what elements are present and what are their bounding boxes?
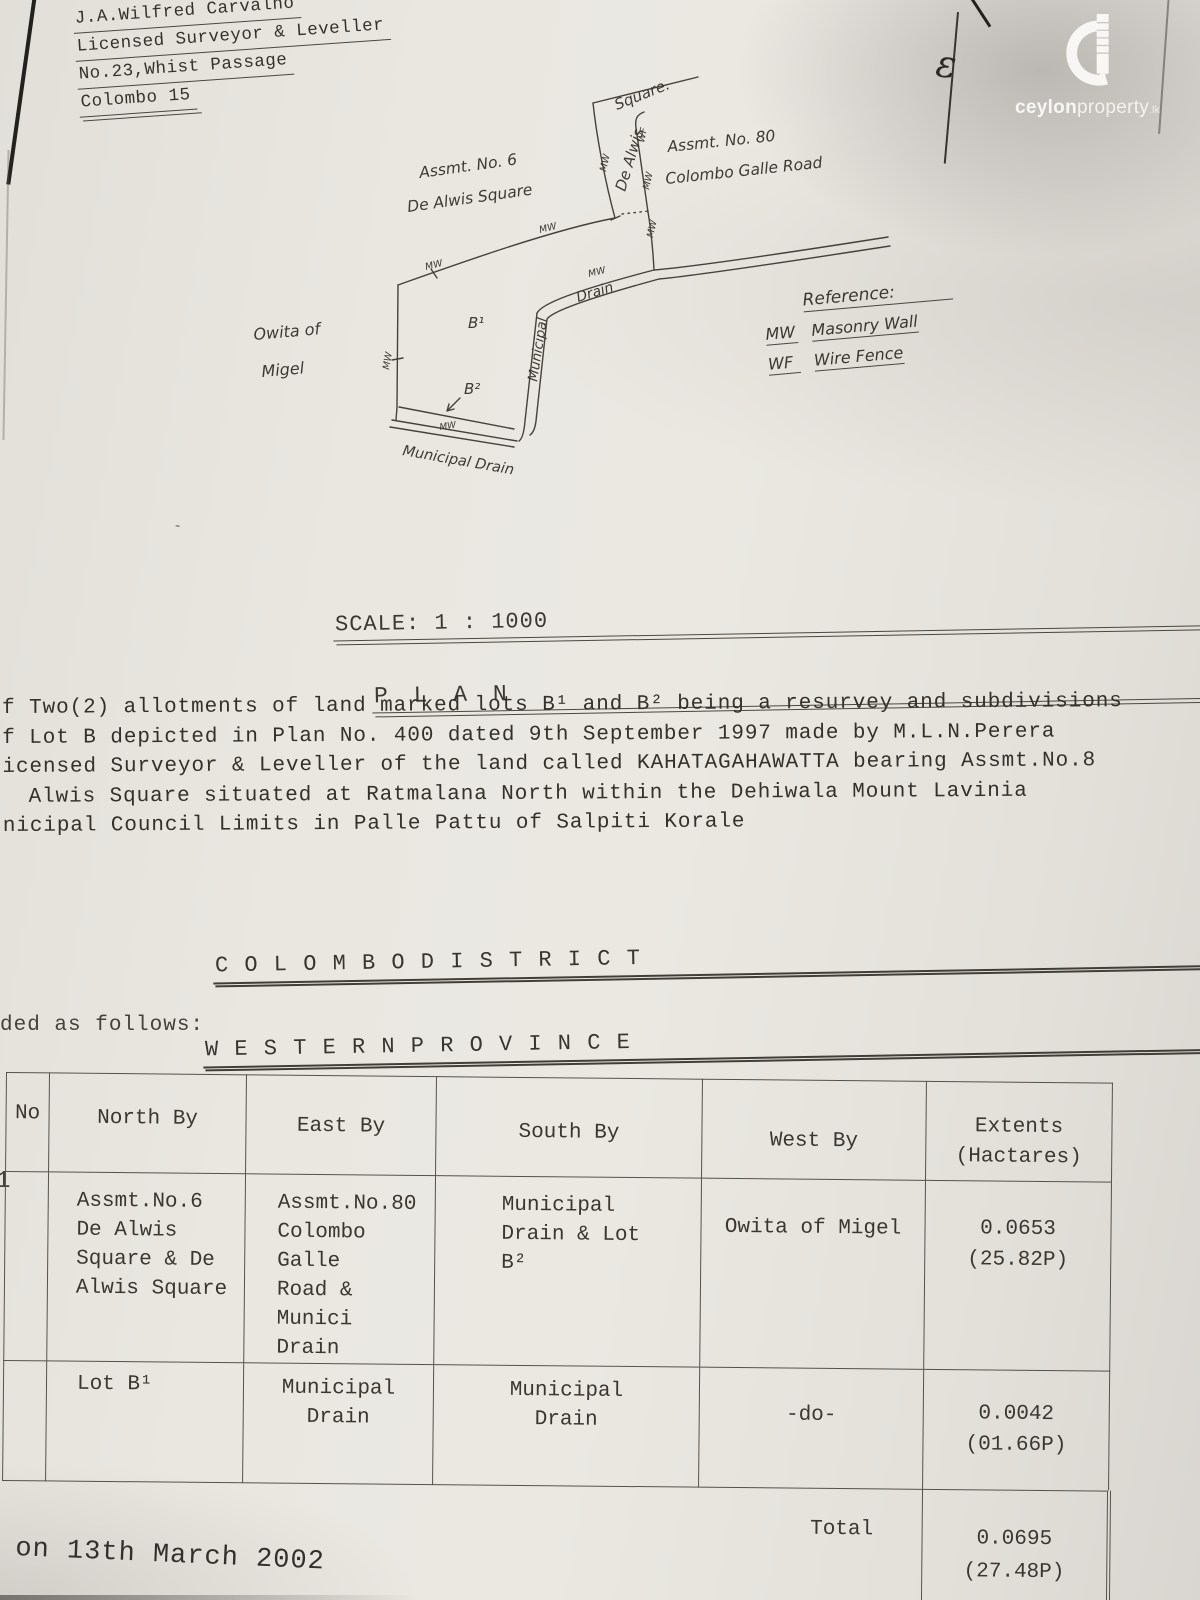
lot-b2-fence-line bbox=[399, 407, 514, 429]
mw-label: MW bbox=[424, 258, 444, 273]
assmt80-label-1: Assmt. No. 80 bbox=[666, 127, 777, 156]
header-no: No bbox=[6, 1073, 50, 1172]
road-end-dotted-line bbox=[622, 211, 649, 214]
cell-east-by: Assmt.No.80Colombo GalleRoad & MuniciDra… bbox=[244, 1174, 436, 1365]
cell-no bbox=[4, 1172, 49, 1361]
ceylonproperty-wordmark: ceylonproperty.lk bbox=[1000, 97, 1175, 119]
municipal-label: Municipal bbox=[525, 316, 551, 382]
total-label: Total bbox=[697, 1487, 922, 1600]
cell-no bbox=[3, 1360, 47, 1480]
header-south-by: South By bbox=[436, 1077, 703, 1179]
lot-b1-label: B¹ bbox=[468, 314, 484, 332]
mw-label: MW bbox=[645, 219, 660, 239]
cell-west-by: Owita of Migel bbox=[700, 1178, 926, 1369]
plan-description: f Two(2) allotments of land marked lots … bbox=[2, 687, 1197, 842]
owita-label-1: Owita of bbox=[253, 319, 323, 344]
logo-text-bold: ceylon bbox=[1015, 97, 1077, 118]
mw-label: MW bbox=[381, 351, 395, 371]
west-boundary-wall bbox=[396, 285, 398, 420]
header-extents-line1: Extents bbox=[927, 1112, 1110, 1144]
description-line: nicipal Council Limits in Palle Pattu of… bbox=[3, 805, 1197, 842]
total-extent: 0.0695(27.48P) bbox=[921, 1489, 1108, 1600]
wf-label: WF bbox=[636, 126, 650, 143]
north-boundary-wall bbox=[398, 218, 615, 285]
table-row: Assmt.No.6De AlwisSquare & DeAlwis Squar… bbox=[4, 1172, 1112, 1372]
scanned-survey-plan-page: ` J.A.Wilfred Carvalho Licensed Surveyor… bbox=[0, 0, 1200, 1600]
table-header-row: No North By East By South By West By Ext… bbox=[6, 1073, 1113, 1183]
logo-text-tld: .lk bbox=[1149, 105, 1160, 116]
plan-sketch: Square. De Alwis WF MW MW MW Assmt. No. … bbox=[240, 70, 940, 480]
ceylonproperty-logo-icon bbox=[1049, 14, 1127, 90]
mw-label: MW bbox=[538, 221, 558, 236]
square-label: Square. bbox=[612, 75, 672, 113]
bounded-as-follows-text: ded as follows: bbox=[0, 1014, 204, 1037]
lot-b2-label: B² bbox=[464, 380, 480, 398]
boundary-line-mark bbox=[944, 12, 959, 164]
header-east-by: East By bbox=[246, 1075, 437, 1176]
scale-text: SCALE: 1 : 1000 bbox=[333, 592, 1200, 642]
wf-abbr: WF bbox=[767, 352, 801, 376]
cell-extent: 0.0653(25.82P) bbox=[924, 1180, 1112, 1371]
cell-north-by: Assmt.No.6De AlwisSquare & DeAlwis Squar… bbox=[47, 1172, 246, 1363]
cell-extent: 0.0042(01.66P) bbox=[923, 1369, 1110, 1491]
mw-label: MW bbox=[587, 265, 607, 280]
logo-text-light: property bbox=[1077, 97, 1149, 118]
header-extents: Extents (Hactares) bbox=[926, 1081, 1113, 1182]
assmt6-label-1: Assmt. No. 6 bbox=[417, 150, 518, 182]
mw-abbr: MW bbox=[765, 322, 799, 346]
header-extents-line2: (Hactares) bbox=[927, 1142, 1110, 1174]
page-edge-line bbox=[6, 0, 36, 185]
header-west-by: West By bbox=[702, 1079, 927, 1180]
cell-south-by: MunicipalDrain bbox=[433, 1365, 700, 1488]
province-heading: W E S T E R N P R O V I N C E bbox=[203, 1017, 1200, 1069]
cell-north-by: Lot B¹ bbox=[46, 1361, 244, 1483]
drain-label: Drain bbox=[574, 279, 615, 305]
assmt80-label-2: Colombo Galle Road bbox=[665, 154, 824, 188]
cell-east-by: MunicipalDrain bbox=[243, 1363, 434, 1485]
arrow-tip-mark bbox=[967, 0, 991, 28]
mw-meaning: Masonry Wall bbox=[811, 312, 919, 342]
reference-legend: Reference: MW Masonry Wall WF Wire Fence bbox=[762, 277, 958, 375]
cell-south-by: MunicipalDrain & LotB² bbox=[434, 1176, 702, 1368]
municipal-drain-label: Municipal Drain bbox=[401, 443, 515, 478]
stray-pen-mark: ` bbox=[171, 521, 193, 547]
boundaries-table-wrap: No North By East By South By West By Ext… bbox=[1, 1072, 1115, 1600]
assmt6-label-2: De Alwis Square bbox=[406, 181, 533, 216]
owita-label-2: Migel bbox=[261, 358, 306, 381]
header-north-by: North By bbox=[49, 1073, 247, 1174]
mw-label: MW bbox=[641, 171, 656, 191]
mw-label: MW bbox=[598, 153, 613, 173]
table-row: Lot B¹ MunicipalDrain MunicipalDrain -do… bbox=[3, 1360, 1110, 1491]
page-edge-shadow bbox=[2, 150, 9, 440]
lot-b2-arrow bbox=[447, 398, 460, 411]
ceylonproperty-watermark: ceylonproperty.lk bbox=[1000, 14, 1175, 119]
boundaries-table: No North By East By South By West By Ext… bbox=[1, 1072, 1115, 1600]
cell-west-by: -do- bbox=[699, 1367, 924, 1489]
district-heading: C O L O M B O D I S T R I C T bbox=[213, 933, 1200, 985]
